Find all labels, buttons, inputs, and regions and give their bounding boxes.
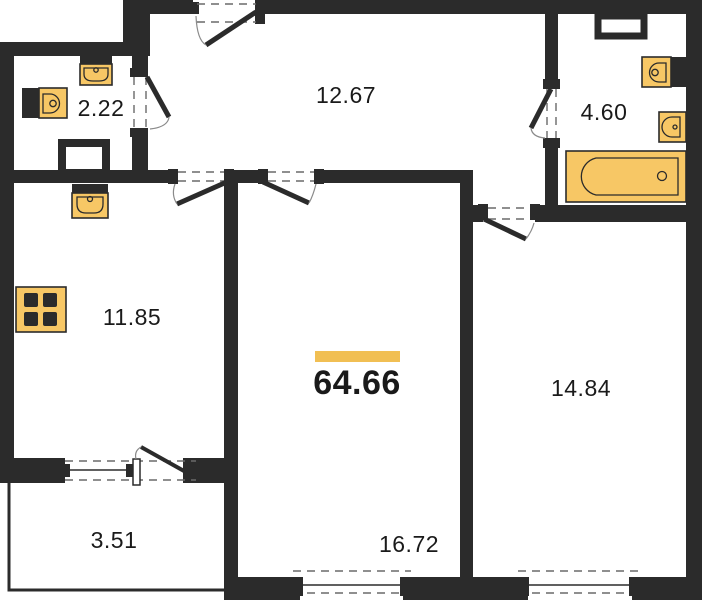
window-dash: [293, 571, 411, 593]
door-jamb: [314, 169, 324, 184]
wall-segment: [224, 577, 300, 600]
window-jamb: [517, 577, 529, 596]
wall-segment: [0, 42, 148, 56]
window-jamb: [60, 464, 70, 477]
room-label-balcony: 3.51: [54, 527, 174, 554]
door-swing-arc: [309, 184, 316, 203]
door-leaf: [206, 12, 256, 45]
door-leaf: [177, 181, 229, 204]
door-swing-arc: [526, 223, 534, 239]
door-frame: [133, 459, 140, 485]
door-jamb: [543, 138, 560, 148]
sink-icon: [72, 184, 108, 218]
door-opening-dash: [268, 172, 314, 181]
door-opening-dash: [178, 172, 224, 181]
door-living-room: [258, 169, 324, 203]
wall-segment: [14, 458, 65, 483]
door-bedroom: [478, 204, 540, 239]
window-jamb: [400, 577, 411, 596]
toilet-icon: [642, 57, 688, 87]
total-area-label: 64.66: [272, 364, 442, 403]
wall-segment: [632, 577, 702, 600]
entrance-door: [190, 0, 265, 45]
window-bedroom: [517, 571, 641, 596]
wall-segment: [224, 183, 238, 600]
wall-segment: [0, 42, 14, 483]
bathtub-icon: [566, 151, 686, 202]
door-jamb: [543, 79, 560, 89]
room-label-hallway: 12.67: [286, 82, 406, 109]
wall-segment: [545, 14, 558, 88]
sink-icon: [80, 56, 112, 85]
door-leaf: [263, 182, 309, 203]
balcony-window: [60, 461, 196, 480]
shaft-niche-small-bathroom: [62, 143, 106, 173]
floor-plan: 2.22 12.67 4.60 11.85 16.72 14.84 3.51 6…: [0, 0, 708, 600]
wall-segment: [535, 205, 700, 222]
door-jamb: [530, 204, 540, 220]
window-jamb: [292, 577, 303, 596]
stove-icon: [16, 287, 66, 332]
wall-segment: [318, 170, 460, 183]
room-label-bathroom: 4.60: [544, 99, 664, 126]
wall-segment: [183, 458, 226, 483]
door-jamb: [255, 0, 265, 24]
total-area-bar: [315, 351, 400, 362]
wall-segment: [258, 0, 700, 14]
room-label-bathroom-small: 2.22: [41, 95, 161, 122]
room-label-kitchen: 11.85: [72, 304, 192, 331]
door-opening-dash: [488, 208, 530, 219]
wall-segment: [545, 140, 558, 205]
wall-segment: [686, 0, 702, 600]
room-label-living-room: 16.72: [349, 531, 469, 558]
shaft-niche-bathroom: [598, 16, 644, 36]
door-jamb: [168, 169, 178, 184]
room-label-bedroom: 14.84: [521, 375, 641, 402]
window-living-room: [292, 571, 411, 596]
window-dash: [518, 571, 641, 593]
door-swing-arc: [173, 184, 177, 204]
door-swing-arc: [531, 128, 545, 138]
door-jamb: [130, 68, 148, 77]
door-leaf: [141, 447, 184, 471]
door-leaf: [484, 219, 526, 239]
window-jamb: [629, 577, 641, 596]
balcony-door: [133, 447, 184, 485]
door-swing-arc: [196, 16, 206, 45]
door-jamb: [130, 128, 148, 137]
wall-segment: [403, 577, 528, 600]
